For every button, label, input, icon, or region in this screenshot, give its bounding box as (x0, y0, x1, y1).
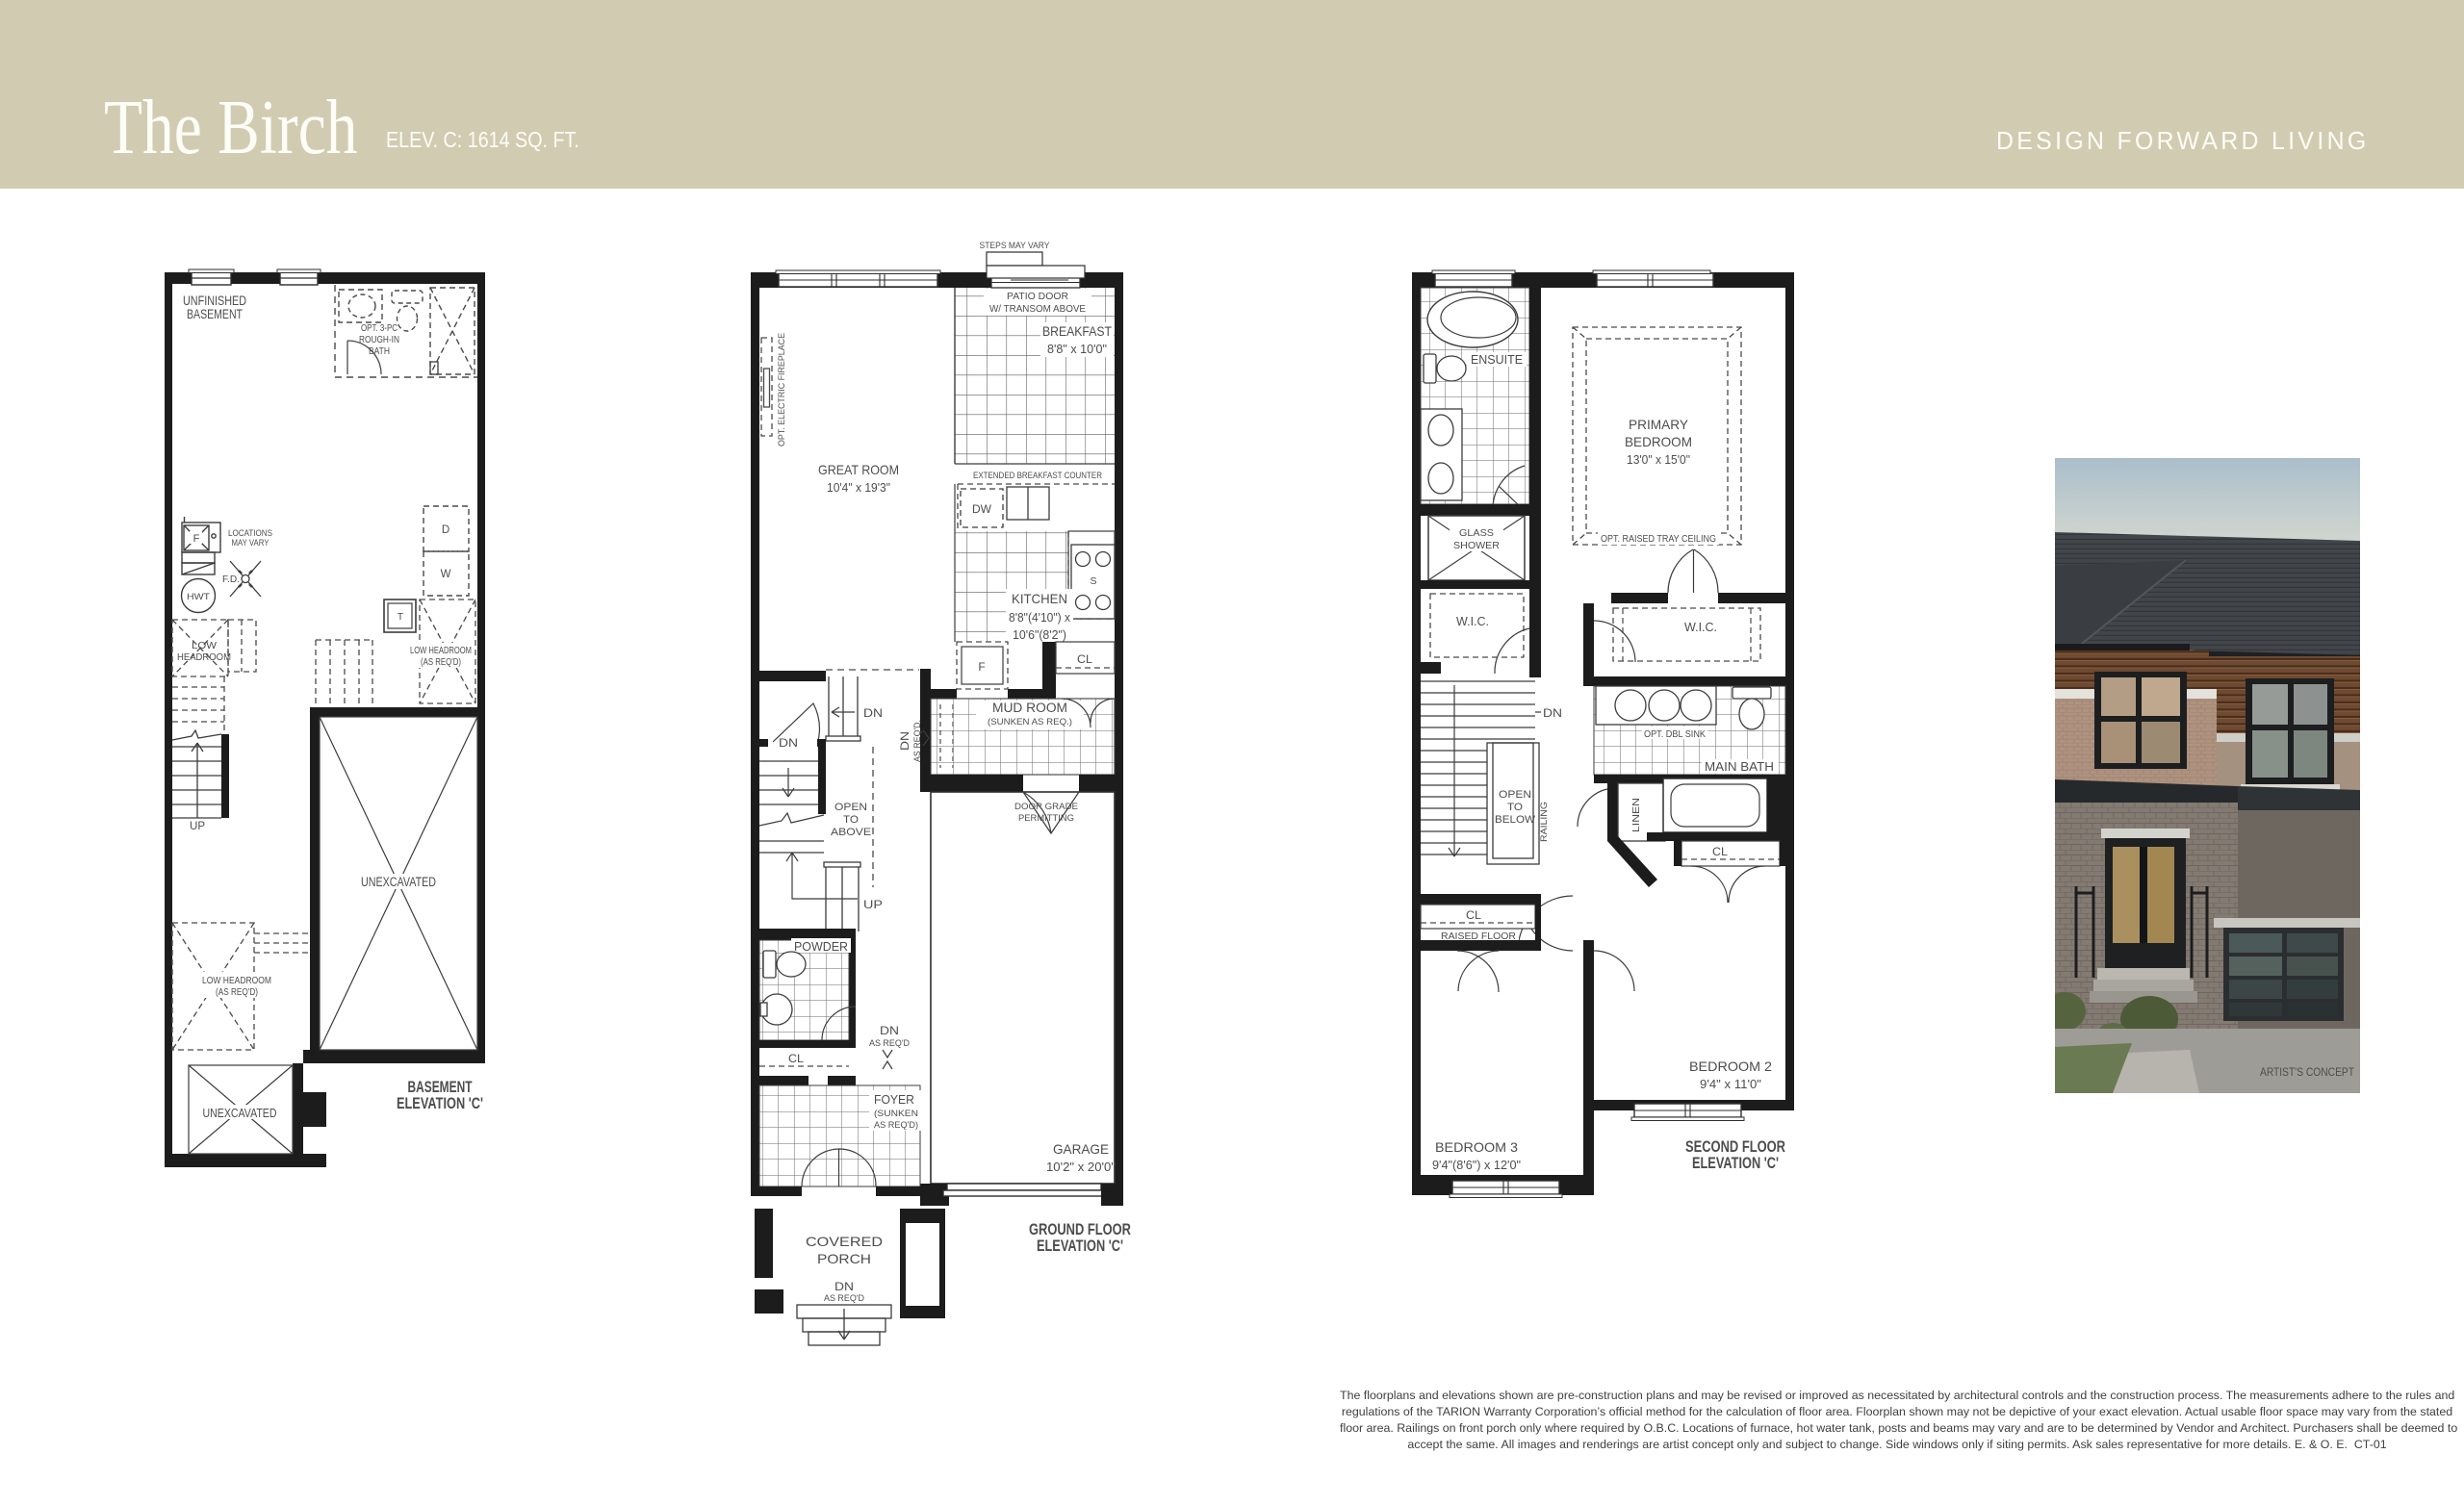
svg-text:LINEN: LINEN (1630, 798, 1642, 832)
svg-text:EXTENDED BREAKFAST COUNTER: EXTENDED BREAKFAST COUNTER (973, 471, 1102, 481)
svg-text:ARTIST'S CONCEPT: ARTIST'S CONCEPT (2260, 1067, 2354, 1079)
svg-text:LOW HEADROOM: LOW HEADROOM (410, 646, 472, 656)
svg-text:10'4" x 19'3": 10'4" x 19'3" (827, 481, 890, 495)
svg-text:W: W (441, 569, 451, 580)
svg-text:PATIO DOOR: PATIO DOOR (1007, 292, 1068, 302)
svg-text:9'4" x 11'0": 9'4" x 11'0" (1700, 1078, 1761, 1091)
svg-text:ENSUITE: ENSUITE (1471, 352, 1523, 367)
svg-text:GROUND FLOOR: GROUND FLOOR (1029, 1221, 1131, 1238)
svg-text:CL: CL (788, 1054, 805, 1065)
svg-text:(SUNKEN: (SUNKEN (874, 1109, 918, 1119)
svg-text:LOW: LOW (192, 641, 218, 651)
svg-text:W/ TRANSOM ABOVE: W/ TRANSOM ABOVE (989, 304, 1086, 315)
svg-text:AS REQ'D.: AS REQ'D. (912, 720, 922, 762)
svg-text:(AS REQ'D): (AS REQ'D) (216, 987, 258, 998)
svg-text:PERMITTING: PERMITTING (1018, 813, 1074, 824)
svg-text:UNEXCAVATED: UNEXCAVATED (361, 875, 436, 889)
svg-text:9'4"(8'6") x 12'0": 9'4"(8'6") x 12'0" (1432, 1159, 1521, 1172)
svg-text:BEDROOM: BEDROOM (1625, 434, 1692, 449)
svg-text:UNEXCAVATED: UNEXCAVATED (203, 1107, 277, 1120)
svg-text:SHOWER: SHOWER (1453, 540, 1500, 551)
svg-text:ELEVATION 'C': ELEVATION 'C' (397, 1095, 483, 1112)
svg-text:W.I.C.: W.I.C. (1456, 615, 1489, 628)
svg-text:DN: DN (1543, 708, 1562, 720)
svg-text:DN: DN (863, 708, 883, 720)
svg-text:RAILING: RAILING (1539, 802, 1550, 842)
svg-text:BREAKFAST: BREAKFAST (1042, 323, 1112, 339)
svg-text:AS REQ'D): AS REQ'D) (874, 1120, 918, 1131)
svg-text:UP: UP (863, 900, 883, 911)
svg-text:F: F (193, 533, 200, 545)
svg-text:(SUNKEN AS REQ.): (SUNKEN AS REQ.) (988, 717, 1072, 727)
svg-text:CL: CL (1077, 654, 1093, 666)
svg-text:10'2" x 20'0": 10'2" x 20'0" (1046, 1161, 1116, 1174)
svg-text:CL: CL (1466, 910, 1482, 922)
svg-text:POWDER: POWDER (794, 939, 848, 954)
svg-text:DW: DW (972, 502, 992, 516)
svg-text:OPT. 3-PC: OPT. 3-PC (361, 322, 398, 334)
svg-text:BELOW: BELOW (1495, 814, 1536, 826)
svg-text:TO: TO (1507, 802, 1523, 813)
svg-text:D: D (442, 524, 449, 536)
svg-text:ELEVATION 'C': ELEVATION 'C' (1692, 1155, 1779, 1172)
svg-text:UP: UP (190, 821, 205, 832)
svg-text:GREAT ROOM: GREAT ROOM (818, 462, 899, 477)
svg-text:8'8"(4'10") x: 8'8"(4'10") x (1009, 611, 1071, 625)
svg-text:AS REQ'D: AS REQ'D (869, 1038, 910, 1048)
svg-text:(AS REQ'D): (AS REQ'D) (421, 657, 461, 668)
svg-text:ABOVE: ABOVE (831, 827, 871, 838)
svg-text:HEADROOM: HEADROOM (177, 652, 231, 663)
svg-text:SECOND FLOOR: SECOND FLOOR (1685, 1138, 1785, 1156)
svg-text:F.D.: F.D. (222, 574, 240, 585)
svg-text:T: T (398, 611, 404, 623)
svg-text:S: S (1090, 575, 1096, 587)
svg-text:W.I.C.: W.I.C. (1684, 621, 1717, 634)
svg-text:13'0" x 15'0": 13'0" x 15'0" (1627, 453, 1690, 467)
svg-text:OPEN: OPEN (834, 802, 867, 813)
svg-text:CL: CL (1712, 847, 1729, 858)
svg-text:MAIN BATH: MAIN BATH (1705, 759, 1774, 774)
svg-text:OPT. DBL SINK: OPT. DBL SINK (1644, 729, 1706, 740)
svg-text:DN: DN (880, 1026, 899, 1037)
svg-text:BEDROOM 2: BEDROOM 2 (1689, 1059, 1772, 1074)
svg-text:BATH: BATH (369, 345, 390, 357)
svg-text:F: F (978, 660, 985, 674)
svg-text:BASEMENT: BASEMENT (408, 1079, 473, 1096)
svg-text:DOOR GRADE: DOOR GRADE (1014, 802, 1078, 812)
svg-text:BASEMENT: BASEMENT (187, 306, 243, 321)
svg-text:MUD ROOM: MUD ROOM (992, 701, 1067, 715)
svg-text:OPEN: OPEN (1499, 789, 1531, 801)
svg-text:10'6"(8'2"): 10'6"(8'2") (1013, 628, 1066, 642)
svg-text:PORCH: PORCH (817, 1251, 871, 1266)
svg-text:DN: DN (900, 731, 911, 751)
svg-text:OPT. RAISED TRAY CEILING: OPT. RAISED TRAY CEILING (1601, 534, 1716, 545)
svg-text:OPT. ELECTRIC FIREPLACE: OPT. ELECTRIC FIREPLACE (777, 333, 787, 446)
svg-text:GLASS: GLASS (1459, 527, 1494, 539)
svg-text:LOW HEADROOM: LOW HEADROOM (202, 976, 271, 986)
svg-text:TO: TO (843, 814, 859, 826)
svg-text:COVERED: COVERED (806, 1234, 883, 1249)
svg-text:STEPS MAY VARY: STEPS MAY VARY (980, 241, 1051, 251)
svg-text:MAY VARY: MAY VARY (232, 538, 270, 548)
svg-text:PRIMARY: PRIMARY (1629, 417, 1689, 432)
svg-text:FOYER: FOYER (874, 1092, 914, 1107)
svg-text:HWT: HWT (187, 592, 210, 602)
svg-text:AS REQ'D: AS REQ'D (824, 1293, 864, 1303)
svg-text:ROUGH-IN: ROUGH-IN (359, 334, 399, 345)
svg-text:8'8" x 10'0": 8'8" x 10'0" (1047, 343, 1107, 356)
svg-text:DN: DN (779, 738, 798, 750)
svg-text:BEDROOM 3: BEDROOM 3 (1435, 1139, 1518, 1155)
svg-text:ELEVATION 'C': ELEVATION 'C' (1037, 1237, 1123, 1255)
svg-text:DN: DN (834, 1282, 854, 1293)
svg-text:GARAGE: GARAGE (1053, 1141, 1109, 1157)
svg-text:KITCHEN: KITCHEN (1012, 591, 1067, 606)
